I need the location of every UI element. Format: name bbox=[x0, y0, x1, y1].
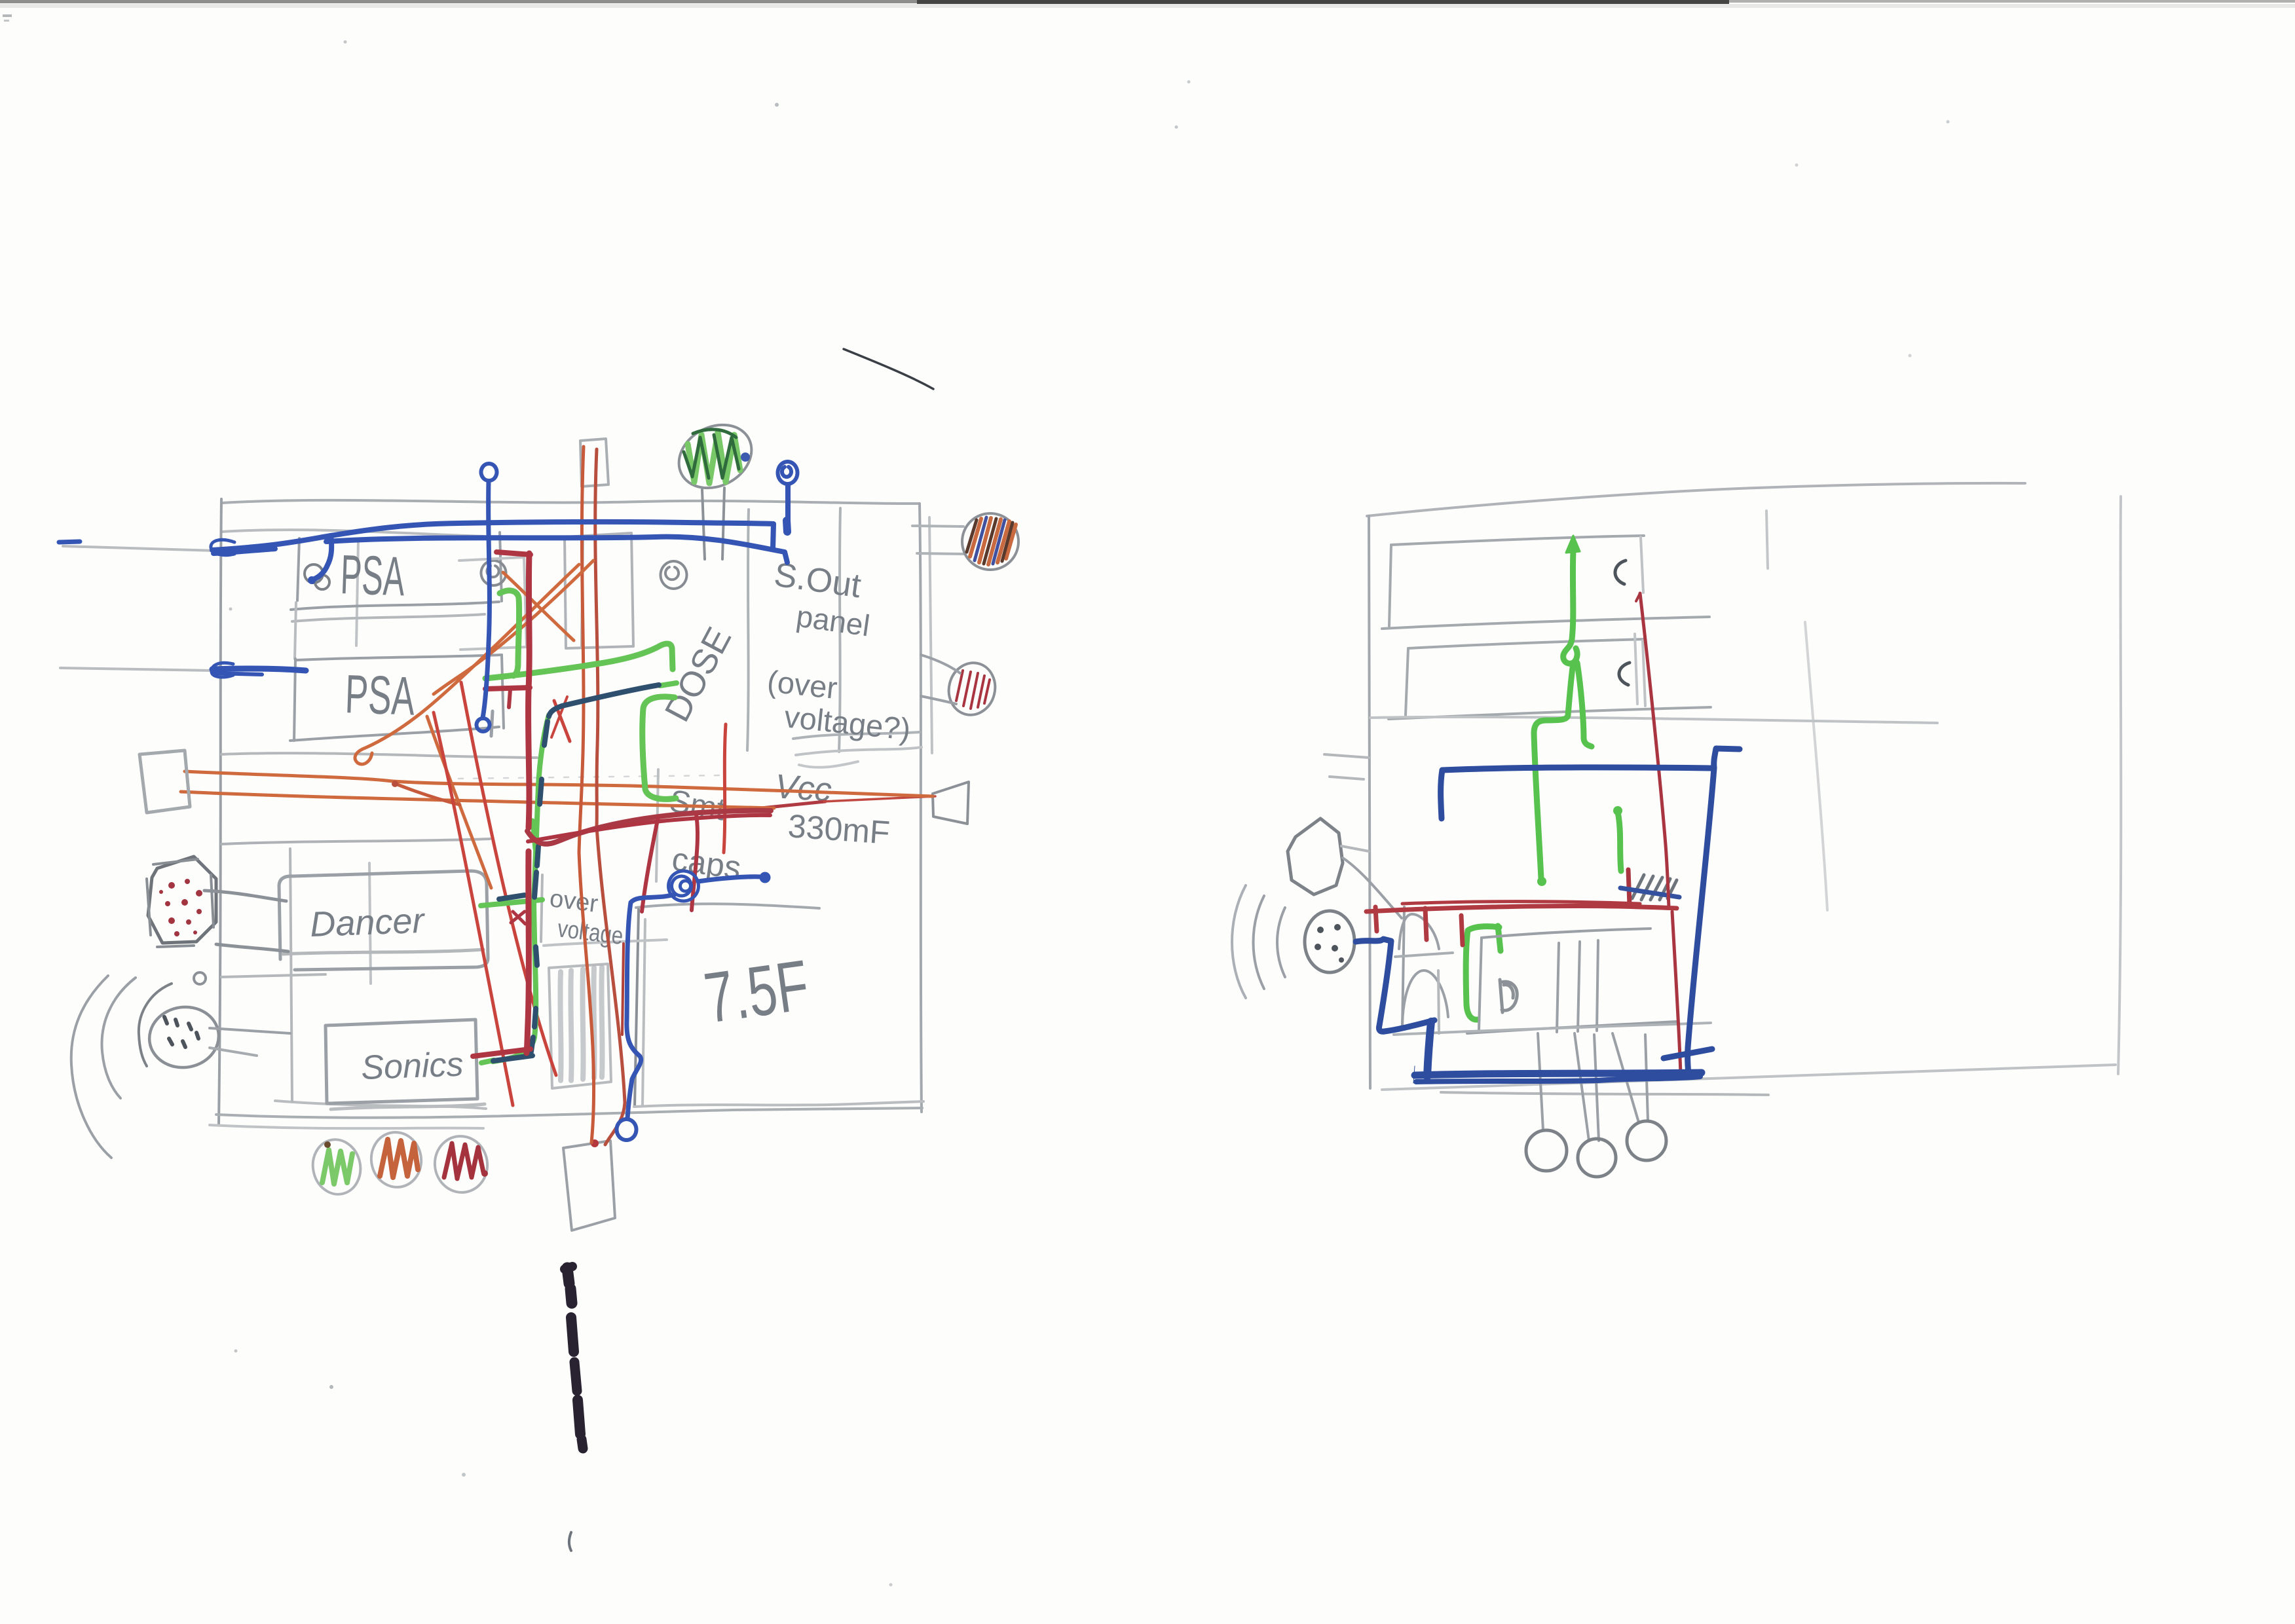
svg-text:PSA: PSA bbox=[344, 663, 416, 727]
svg-text:PSA: PSA bbox=[339, 544, 405, 608]
svg-text:(over: (over bbox=[766, 663, 839, 705]
svg-text:Sonics: Sonics bbox=[360, 1046, 464, 1087]
svg-text:over: over bbox=[548, 885, 600, 918]
svg-text:7.5F: 7.5F bbox=[700, 946, 813, 1039]
svg-text:Dancer: Dancer bbox=[309, 901, 426, 944]
svg-text:330mF: 330mF bbox=[787, 807, 891, 851]
